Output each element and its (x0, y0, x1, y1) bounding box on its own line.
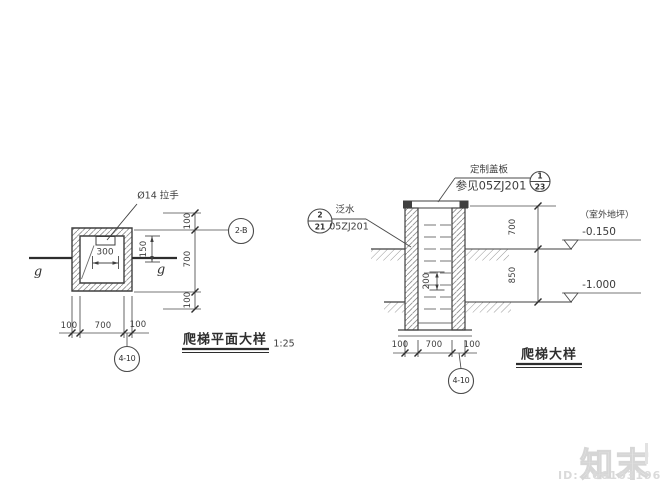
cover-plate-ref: 参见05ZJ201 (456, 180, 527, 192)
plan-dim-300: 300 (96, 249, 113, 258)
section-dim-200: 200 (423, 273, 432, 290)
plan-bottom-dim-left: 100 (61, 322, 78, 331)
plan-axis-bubble-bottom: 4-10 (119, 355, 136, 363)
plan-dim-300 (93, 256, 119, 269)
section-title: 爬梯大样 (521, 349, 577, 362)
section-bottom-dim-left: 100 (392, 341, 409, 350)
plan-bottom-dim-right: 100 (130, 321, 147, 330)
watermark-id: ID: 166103196 (558, 469, 661, 482)
section-title-underline (516, 364, 582, 368)
section-ground (371, 249, 572, 313)
section-bottom-dim-right: 100 (464, 341, 481, 350)
flashing-label: 泛水 (335, 205, 354, 215)
plan-axis-letter-right: g (157, 264, 165, 277)
flashing-bubble-sheet: 21 (315, 223, 325, 231)
plan-title: 爬梯平面大样 (183, 334, 267, 347)
plan-dim-150: 150 (140, 241, 149, 258)
plan-right-dim-mid: 700 (184, 251, 193, 268)
section-elevation-markers (562, 240, 641, 302)
site-ground-label: （室外地坪） (580, 212, 634, 221)
plan-bottom-dim-mid: 700 (95, 322, 112, 331)
section-axis-bubble-bottom: 4-10 (453, 377, 470, 385)
flashing-bubble-number: 2 (317, 211, 322, 219)
plan-right-dim-top: 100 (184, 213, 193, 230)
plan-title-underline (182, 349, 269, 353)
section-cover-plate (403, 201, 469, 209)
cover-bubble-sheet: 23 (535, 183, 545, 191)
cad-drawing-page: Ø14 拉手 300 150 100 700 100 100 700 100 g… (0, 0, 667, 500)
handle-label: Ø14 拉手 (137, 191, 179, 201)
plan-scale: 1:25 (273, 339, 294, 349)
watermark-cursor-bar (645, 443, 648, 464)
section-dim-850: 850 (509, 267, 518, 284)
cover-bubble-number: 1 (537, 172, 542, 180)
section-dim-700: 700 (509, 219, 518, 236)
section-dim-200 (430, 272, 445, 290)
plan-axis-bubble-right: 2-B (235, 227, 247, 235)
section-bottom-dim-mid: 700 (426, 341, 443, 350)
elevation-upper: -0.150 (582, 227, 616, 238)
elevation-lower: -1.000 (582, 280, 616, 291)
plan-axis-letter-left: g (34, 266, 42, 279)
section-rungs (424, 225, 451, 309)
plan-right-dim-bot: 100 (184, 292, 193, 309)
flashing-ref: 05ZJ201 (329, 222, 369, 232)
cover-plate-label: 定制盖板 (470, 165, 508, 175)
